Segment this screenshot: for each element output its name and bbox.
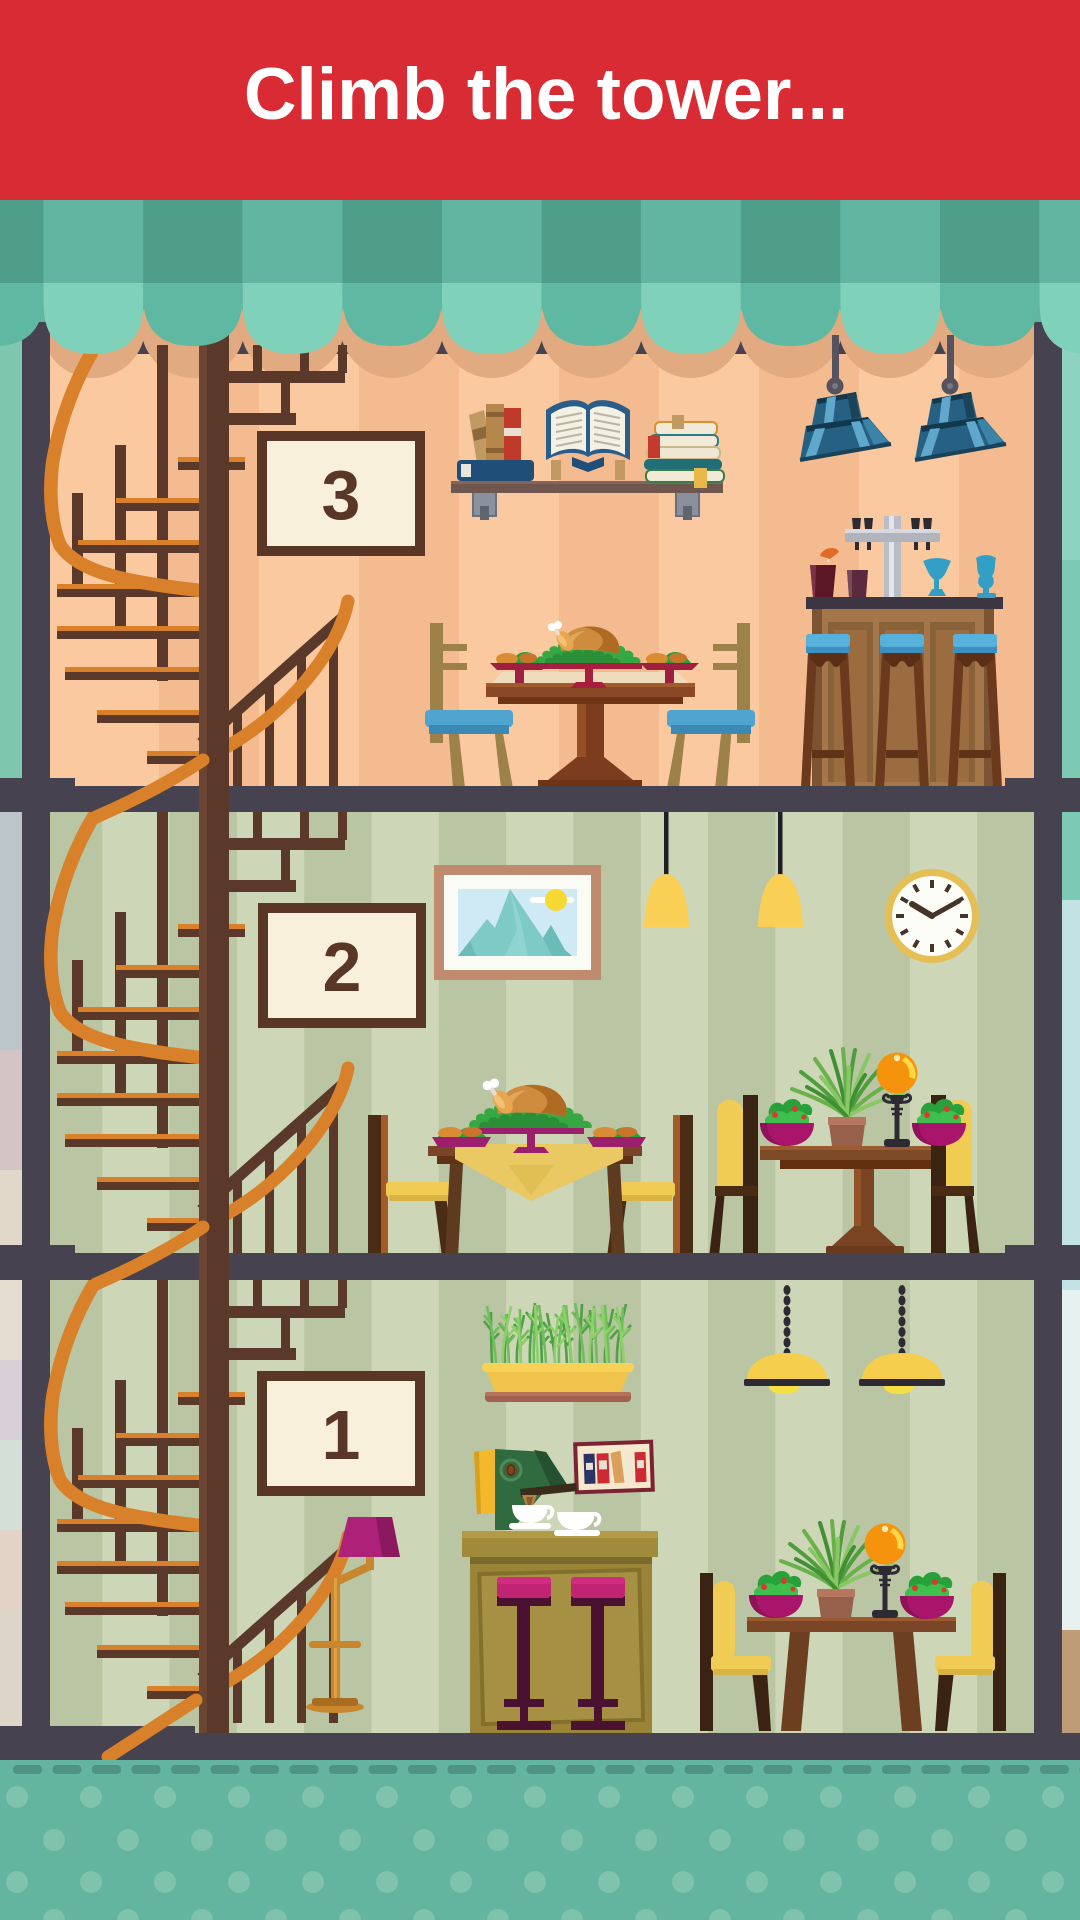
- svg-text:2: 2: [323, 928, 362, 1006]
- svg-text:1: 1: [322, 1396, 361, 1474]
- svg-text:Climb the tower...: Climb the tower...: [244, 54, 848, 135]
- svg-text:3: 3: [322, 456, 361, 534]
